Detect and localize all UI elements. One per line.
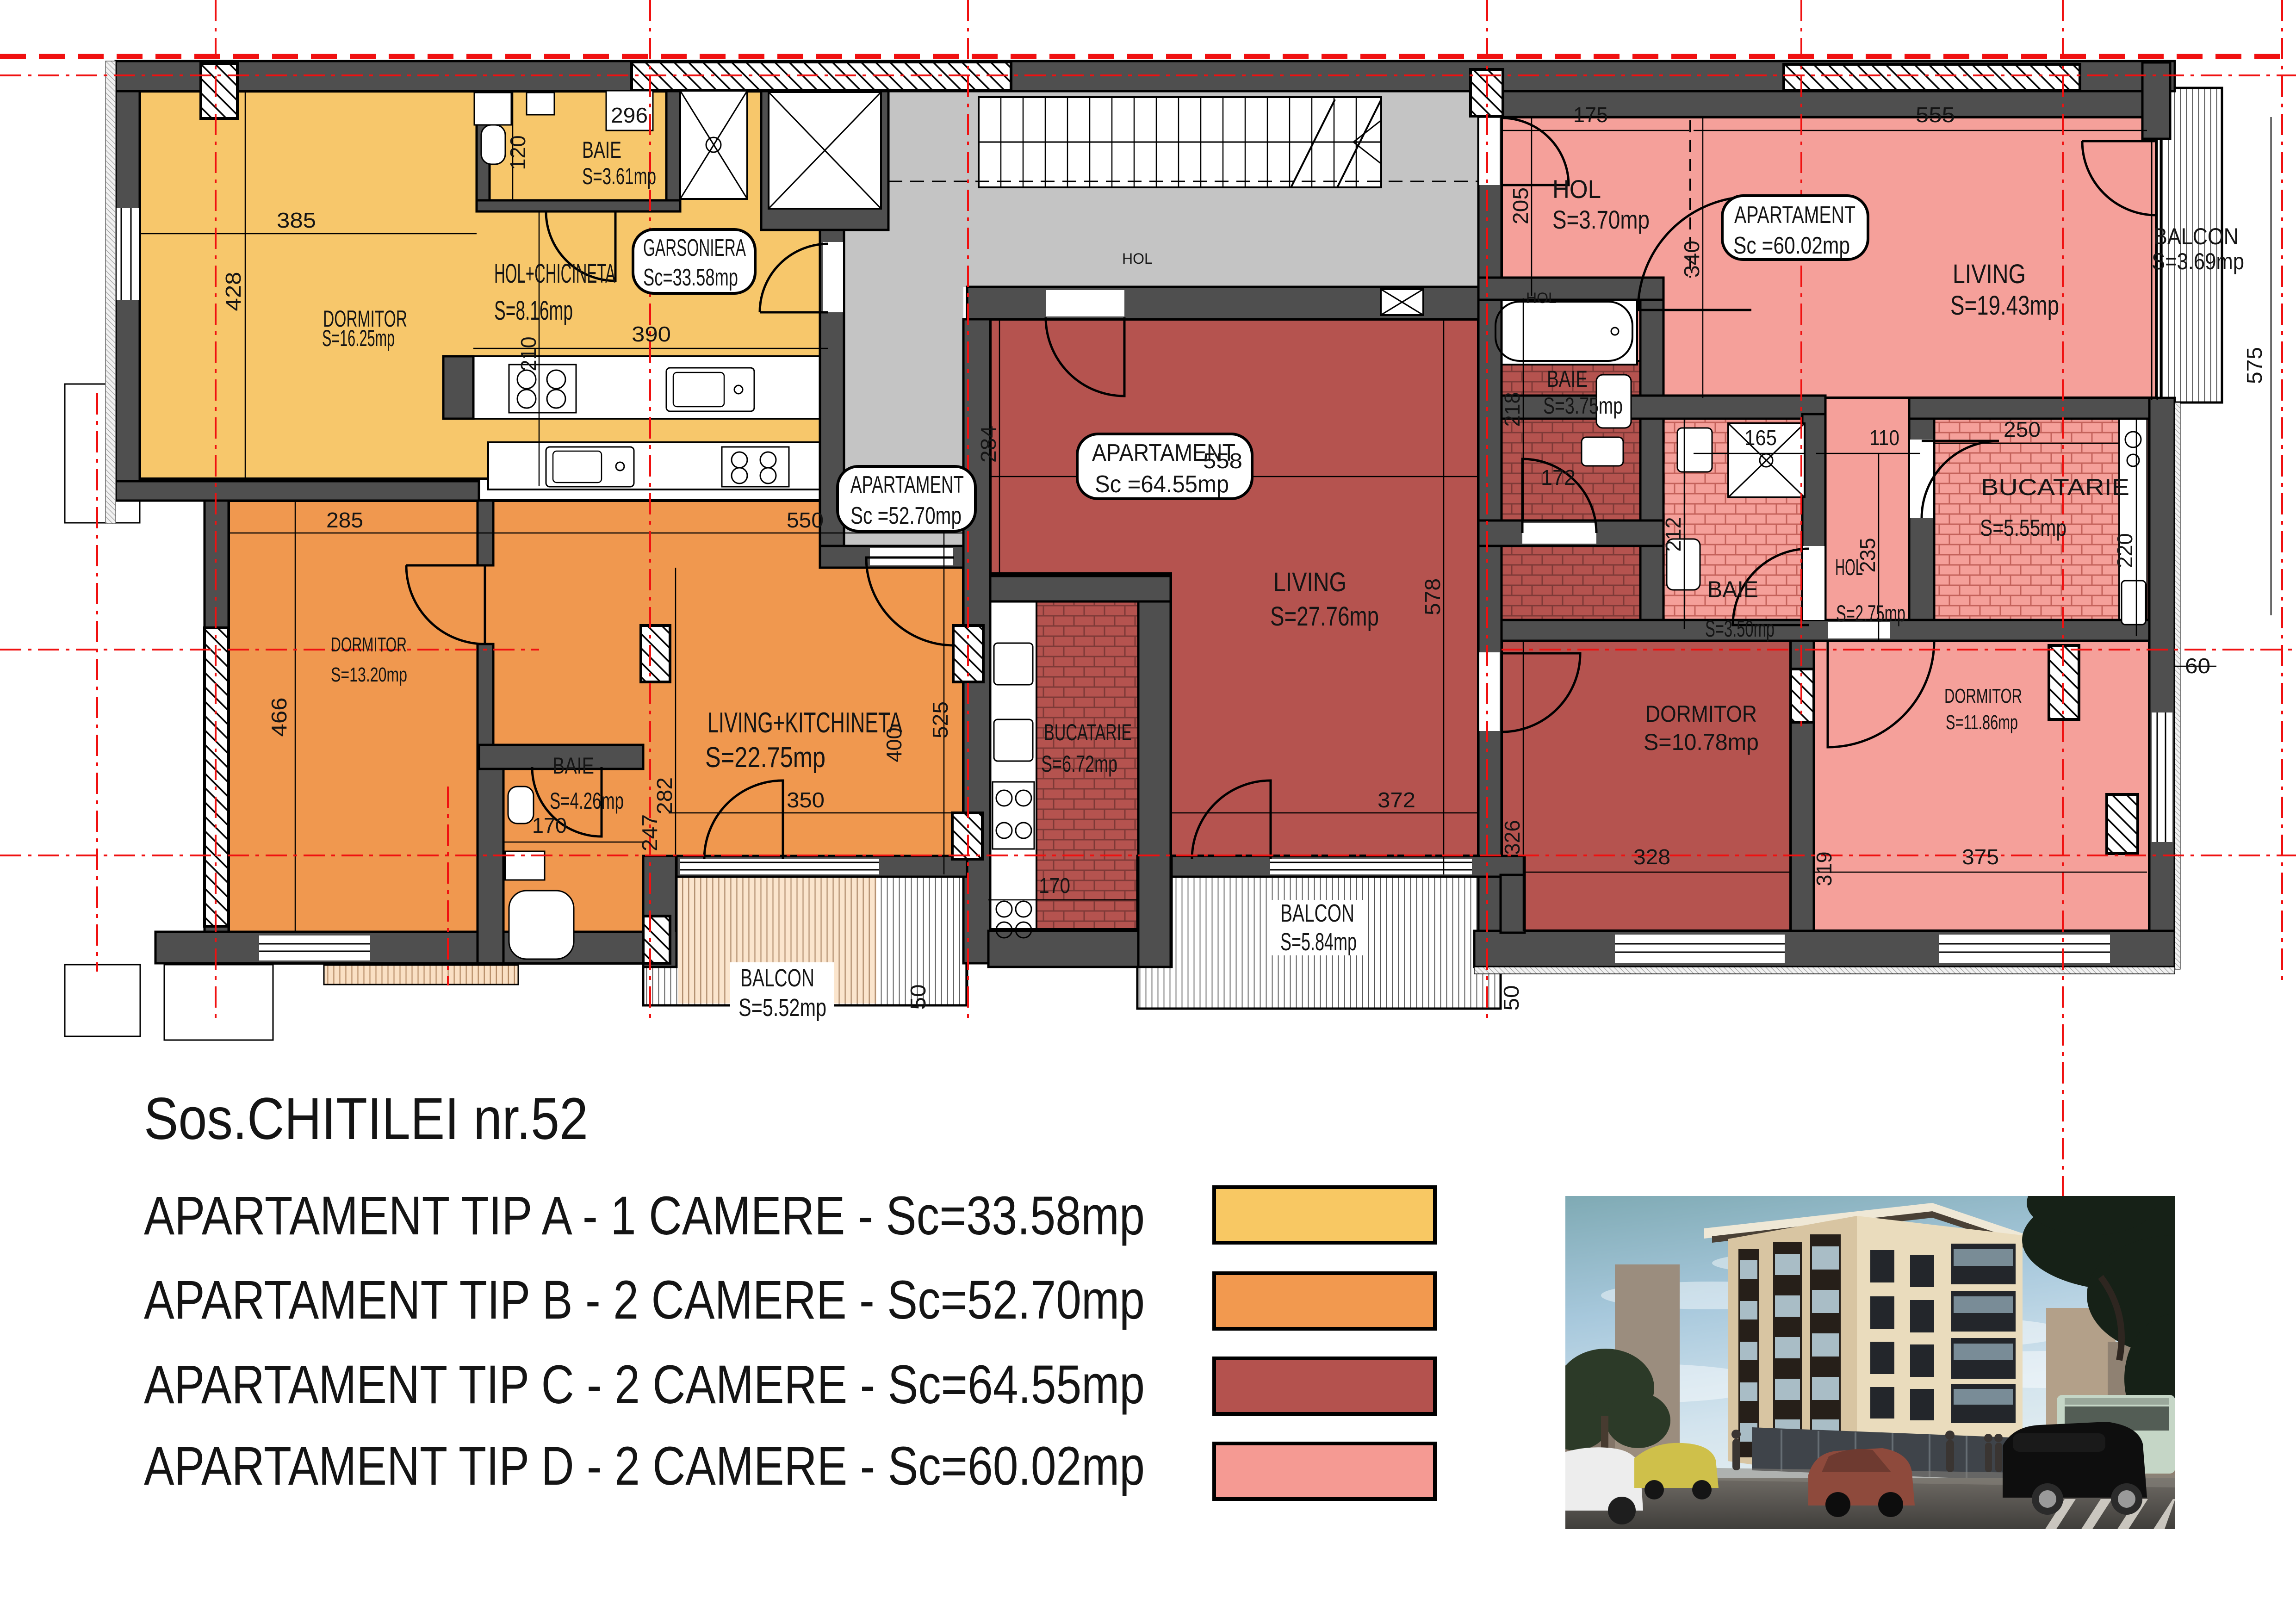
svg-text:235: 235 xyxy=(1855,538,1880,573)
svg-text:S=27.76mp: S=27.76mp xyxy=(1270,601,1379,632)
svg-text:110: 110 xyxy=(1869,426,1899,450)
svg-text:400: 400 xyxy=(882,728,906,762)
svg-text:S=3.61mp: S=3.61mp xyxy=(582,163,656,189)
svg-text:282: 282 xyxy=(652,777,676,814)
svg-text:S=3.70mp: S=3.70mp xyxy=(1552,205,1650,234)
svg-text:BAIE: BAIE xyxy=(582,137,621,163)
svg-text:220: 220 xyxy=(2113,533,2137,568)
svg-text:LIVING: LIVING xyxy=(1953,259,2026,289)
svg-text:APARTAMENT TIP D - 2 CAMERE -: APARTAMENT TIP D - 2 CAMERE - Sc=60.02mp xyxy=(144,1436,1145,1497)
svg-text:210: 210 xyxy=(516,337,540,372)
svg-text:BALCON: BALCON xyxy=(2153,223,2239,249)
svg-text:555: 555 xyxy=(1916,103,1955,127)
svg-text:319: 319 xyxy=(1812,852,1836,886)
svg-text:205: 205 xyxy=(1508,187,1533,224)
svg-text:BALCON: BALCON xyxy=(1280,899,1354,927)
svg-text:170: 170 xyxy=(1039,873,1070,898)
svg-text:Sos.CHITILEI nr.52: Sos.CHITILEI nr.52 xyxy=(144,1086,588,1152)
svg-text:HOL: HOL xyxy=(1552,174,1601,204)
svg-text:S=6.72mp: S=6.72mp xyxy=(1041,751,1117,777)
svg-text:BUCATARIE: BUCATARIE xyxy=(1044,719,1132,745)
svg-text:175: 175 xyxy=(1573,103,1608,127)
svg-text:S=2.75mp: S=2.75mp xyxy=(1836,601,1905,626)
svg-text:HOL: HOL xyxy=(1526,290,1557,306)
svg-text:S=22.75mp: S=22.75mp xyxy=(705,742,825,774)
svg-text:LIVING: LIVING xyxy=(1273,567,1347,597)
svg-text:250: 250 xyxy=(2004,417,2041,441)
svg-text:HOL+CHICINETA: HOL+CHICINETA xyxy=(494,259,615,289)
svg-text:50: 50 xyxy=(1499,985,1523,1011)
svg-text:APARTAMENT: APARTAMENT xyxy=(1734,202,1855,229)
svg-text:BAIE: BAIE xyxy=(1547,366,1588,392)
svg-text:APARTAMENT: APARTAMENT xyxy=(850,471,964,498)
svg-text:S=11.86mp: S=11.86mp xyxy=(1946,711,2018,734)
svg-text:S=10.78mp: S=10.78mp xyxy=(1644,729,1759,755)
svg-text:340: 340 xyxy=(1680,241,1704,278)
svg-text:170: 170 xyxy=(532,813,567,837)
svg-text:172: 172 xyxy=(1541,465,1576,489)
svg-text:120: 120 xyxy=(506,136,530,170)
svg-text:DORMITOR: DORMITOR xyxy=(1645,701,1757,727)
svg-text:GARSONIERA: GARSONIERA xyxy=(643,235,746,261)
svg-text:558: 558 xyxy=(1203,449,1242,473)
svg-text:DORMITOR: DORMITOR xyxy=(331,633,407,656)
svg-text:428: 428 xyxy=(221,272,245,311)
svg-text:S=4.26mp: S=4.26mp xyxy=(550,788,624,814)
svg-text:50: 50 xyxy=(906,985,930,1010)
svg-text:350: 350 xyxy=(787,788,825,812)
svg-text:S=13.20mp: S=13.20mp xyxy=(331,663,407,686)
svg-text:DORMITOR: DORMITOR xyxy=(1944,685,2022,707)
svg-text:375: 375 xyxy=(1962,845,1999,869)
svg-text:Sc =60.02mp: Sc =60.02mp xyxy=(1733,232,1850,259)
svg-text:Sc =64.55mp: Sc =64.55mp xyxy=(1095,471,1229,498)
svg-text:APARTAMENT TIP C - 2 CAMERE -: APARTAMENT TIP C - 2 CAMERE - Sc=64.55mp xyxy=(144,1354,1145,1415)
svg-text:525: 525 xyxy=(928,701,952,738)
svg-text:165: 165 xyxy=(1744,426,1777,450)
svg-text:HOL: HOL xyxy=(1122,250,1153,267)
svg-text:S=3.50mp: S=3.50mp xyxy=(1705,616,1775,642)
svg-text:385: 385 xyxy=(277,208,316,232)
svg-text:Sc=33.58mp: Sc=33.58mp xyxy=(643,264,738,291)
svg-text:372: 372 xyxy=(1378,788,1415,812)
svg-text:S=19.43mp: S=19.43mp xyxy=(1950,291,2059,321)
svg-text:285: 285 xyxy=(326,508,363,532)
svg-text:60: 60 xyxy=(2185,654,2210,678)
svg-text:LIVING+KITCHINETA: LIVING+KITCHINETA xyxy=(707,707,902,739)
svg-text:Sc =52.70mp: Sc =52.70mp xyxy=(850,502,962,529)
svg-text:S=3.75mp: S=3.75mp xyxy=(1543,393,1623,419)
svg-text:S=5.84mp: S=5.84mp xyxy=(1280,928,1357,956)
svg-text:575: 575 xyxy=(2242,347,2266,384)
svg-text:466: 466 xyxy=(267,698,291,737)
svg-text:S=3.69mp: S=3.69mp xyxy=(2152,248,2244,274)
svg-text:247: 247 xyxy=(638,814,662,851)
svg-text:APARTAMENT TIP B - 2 CAMERE -: APARTAMENT TIP B - 2 CAMERE - Sc=52.70mp xyxy=(144,1270,1145,1331)
svg-text:APARTAMENT TIP A - 1 CAMERE -: APARTAMENT TIP A - 1 CAMERE - Sc=33.58mp xyxy=(144,1185,1145,1246)
svg-text:BAIE: BAIE xyxy=(1707,576,1758,602)
svg-text:550: 550 xyxy=(787,508,824,532)
svg-text:S=8.16mp: S=8.16mp xyxy=(494,296,573,326)
svg-text:326: 326 xyxy=(1500,820,1524,855)
svg-text:S=5.52mp: S=5.52mp xyxy=(738,994,826,1022)
svg-text:S=16.25mp: S=16.25mp xyxy=(322,325,395,351)
svg-text:212: 212 xyxy=(1661,517,1685,552)
svg-text:BAIE: BAIE xyxy=(552,753,594,779)
svg-text:390: 390 xyxy=(632,322,671,346)
svg-text:284: 284 xyxy=(976,426,1000,463)
svg-text:296: 296 xyxy=(611,103,648,127)
svg-text:BUCATARIE: BUCATARIE xyxy=(1981,474,2129,500)
svg-text:S=5.55mp: S=5.55mp xyxy=(1980,515,2066,541)
svg-text:578: 578 xyxy=(1421,578,1445,615)
svg-text:218: 218 xyxy=(1500,392,1524,427)
svg-text:BALCON: BALCON xyxy=(740,964,814,992)
svg-text:328: 328 xyxy=(1633,845,1670,869)
